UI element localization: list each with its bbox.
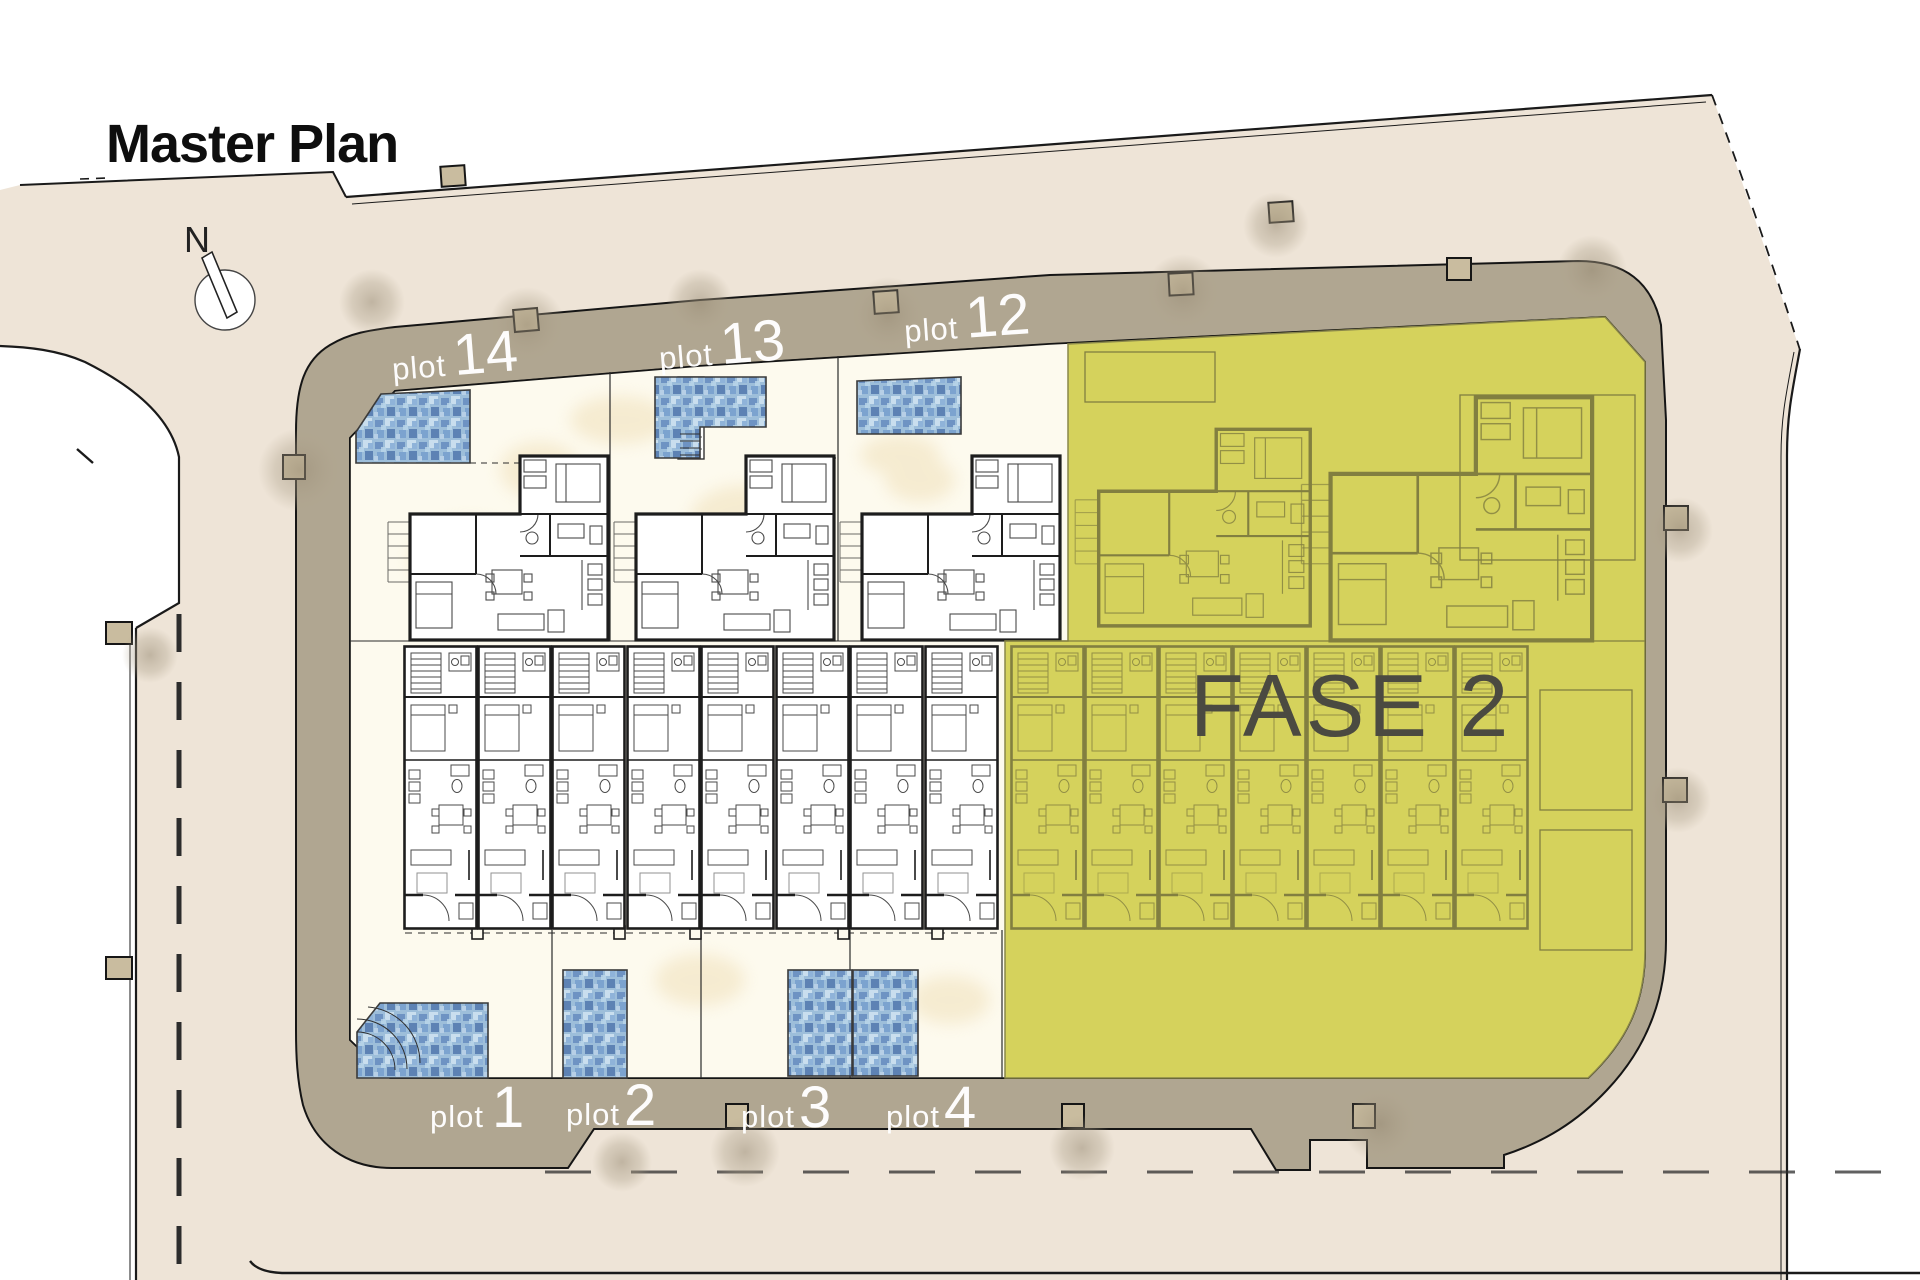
row-house-unit	[479, 647, 551, 929]
pool-plot1	[357, 1003, 488, 1078]
row-house-unit	[926, 647, 998, 929]
master-plan-canvas: FASE 2 plot14	[0, 0, 1920, 1280]
pool-plot3	[788, 970, 852, 1076]
pool-plot4	[853, 970, 918, 1076]
row-house-unit	[851, 647, 923, 929]
north-label: N	[184, 219, 210, 260]
pool-plot2	[563, 970, 627, 1078]
phase2-label: FASE 2	[1190, 656, 1512, 755]
row-house-unit	[628, 647, 700, 929]
row-house-unit	[702, 647, 774, 929]
row-house-unit	[405, 647, 477, 929]
master-plan-drawing: FASE 2 plot14	[0, 0, 1920, 1280]
pool-plot12	[857, 377, 961, 434]
page-title: Master Plan	[106, 114, 398, 174]
row-house-unit	[777, 647, 849, 929]
row-house-unit-phase2	[1086, 647, 1158, 929]
row-house-unit-phase2	[1012, 647, 1084, 929]
row-house-unit	[553, 647, 625, 929]
